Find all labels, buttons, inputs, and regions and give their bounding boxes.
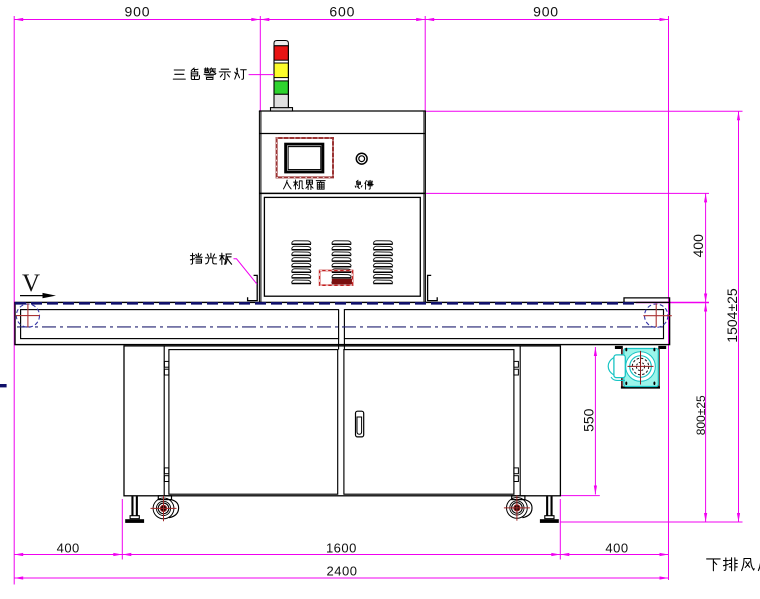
svg-text:2400: 2400 xyxy=(327,564,358,579)
svg-text:800±25: 800±25 xyxy=(694,395,708,435)
svg-text:V: V xyxy=(22,270,40,297)
svg-text:900: 900 xyxy=(533,4,559,20)
svg-text:600: 600 xyxy=(329,4,355,20)
svg-text:550: 550 xyxy=(581,408,597,432)
svg-text:400: 400 xyxy=(605,540,628,555)
svg-text:1504±25: 1504±25 xyxy=(724,288,740,343)
svg-text:900: 900 xyxy=(125,4,151,20)
svg-text:1600: 1600 xyxy=(326,540,357,555)
svg-text:400: 400 xyxy=(690,234,706,258)
svg-text:400: 400 xyxy=(57,540,80,555)
